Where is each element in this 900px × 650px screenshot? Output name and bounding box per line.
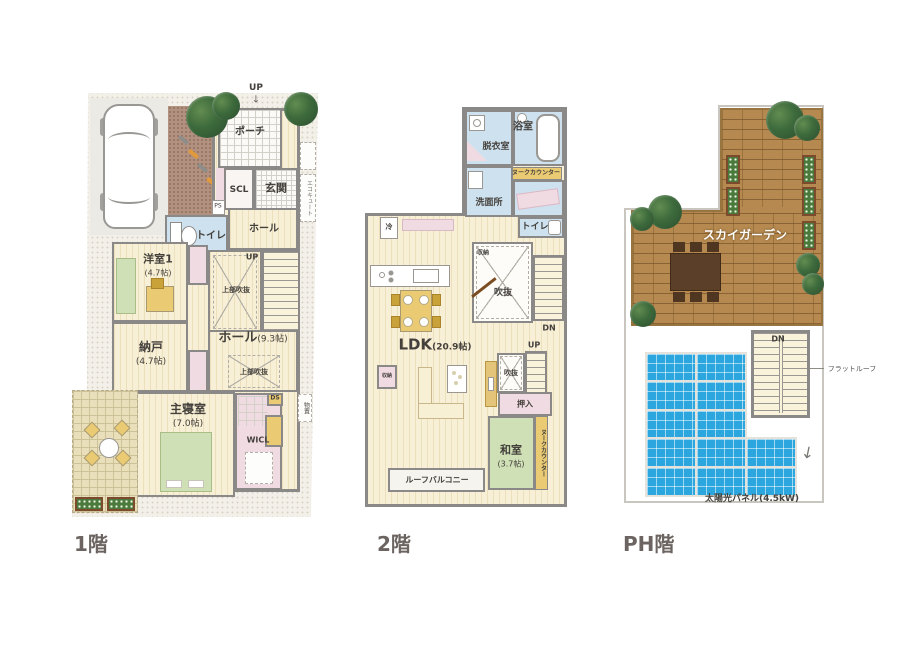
void-upper1-label: 上部吹抜 bbox=[222, 286, 250, 294]
shuno-left-label: 収納 bbox=[382, 374, 392, 380]
hall-main-label: ホール(9.3帖) bbox=[218, 332, 287, 347]
yoshitsu1-rug bbox=[116, 258, 136, 314]
tree bbox=[648, 195, 682, 229]
car bbox=[103, 104, 155, 229]
place-setting bbox=[419, 295, 429, 305]
toilet-label-1f: トイレ bbox=[196, 230, 226, 242]
garden-bench bbox=[690, 292, 702, 302]
nook-counter-side-label: ヌークカウンター bbox=[539, 429, 546, 477]
shushinshitsu-label: 主寝室 bbox=[170, 403, 206, 417]
void-upper2-label: 上部吹抜 bbox=[240, 368, 268, 376]
bed-pillow bbox=[188, 480, 204, 488]
up-stairs-label: UP bbox=[246, 252, 258, 261]
garden-planter bbox=[802, 155, 816, 184]
oshiire-label: 押入 bbox=[517, 399, 533, 408]
ldk-label: LDK(20.9帖) bbox=[398, 336, 471, 353]
closet-nando bbox=[188, 350, 208, 392]
kitchen-back-counter bbox=[402, 219, 454, 231]
porch-label: ポーチ bbox=[235, 126, 265, 138]
bathtub bbox=[536, 114, 560, 162]
car-body bbox=[103, 104, 155, 229]
solar-panel bbox=[695, 437, 747, 468]
study-counter-chair bbox=[488, 377, 494, 391]
car-rear-window bbox=[108, 190, 150, 204]
tree bbox=[284, 92, 318, 126]
garden-bench bbox=[690, 242, 702, 252]
flower-planter bbox=[107, 497, 135, 511]
yoshitsu1-desk bbox=[146, 286, 174, 312]
hall-small-label: ホール bbox=[249, 223, 279, 235]
hall-main-name: ホール bbox=[218, 331, 257, 346]
vanity-sink bbox=[468, 171, 483, 189]
dining-chair bbox=[391, 294, 400, 306]
stairs-up-2f bbox=[525, 351, 547, 395]
coffee-table bbox=[447, 365, 467, 393]
ecocute-label: エコキュート bbox=[305, 180, 312, 216]
coffee-table-items bbox=[452, 371, 456, 375]
solar-panel bbox=[695, 352, 747, 383]
solar-panel bbox=[695, 466, 747, 497]
flat-roof-label: フラットルーフ bbox=[828, 365, 877, 373]
yoshitsu1-label: 洋室1 bbox=[143, 254, 173, 267]
wicl-shelves bbox=[238, 396, 268, 426]
floorPH-plan: ↓ スカイガーデン DN フラットルーフ 太陽光パネル(4.5kW) bbox=[618, 95, 878, 515]
washitsu-label: 和室 bbox=[500, 445, 522, 458]
garden-planter bbox=[802, 221, 816, 250]
flat-roof-connector bbox=[810, 368, 824, 369]
closet-yoshitsu bbox=[188, 245, 208, 285]
ldk-size: (20.9帖) bbox=[432, 342, 471, 352]
up-label-approach: UP bbox=[249, 83, 263, 93]
solar-panel bbox=[645, 466, 697, 497]
stove-burner bbox=[379, 272, 385, 278]
wicl-label: WICL bbox=[247, 435, 270, 444]
floorPH-caption: PH階 bbox=[623, 528, 674, 557]
yoshitsu1-chair bbox=[151, 278, 164, 289]
solar-panel bbox=[645, 409, 697, 440]
nando-size: (4.7帖) bbox=[136, 357, 166, 367]
floor2-plan: 脱衣室 浴室 ヌークカウンター 洗面所 トイレ 冷 収納 吹抜 DN LDK(2… bbox=[355, 95, 580, 515]
garden-planter bbox=[726, 155, 740, 184]
ecocute-box bbox=[300, 142, 316, 170]
solar-panel bbox=[745, 437, 797, 468]
senmenjo-label: 洗面所 bbox=[475, 198, 502, 208]
car-windshield bbox=[108, 132, 150, 148]
solar-panel bbox=[645, 380, 697, 411]
stairs-dn-2f bbox=[533, 255, 564, 321]
bed-pillow bbox=[166, 480, 182, 488]
stairs-1f bbox=[262, 250, 300, 334]
garden-bench bbox=[707, 292, 719, 302]
dining-chair bbox=[432, 294, 441, 306]
hall-main-size: (9.3帖) bbox=[257, 335, 287, 345]
place-setting bbox=[403, 317, 413, 327]
yoshitsu1-size: (4.7帖) bbox=[145, 268, 172, 277]
place-setting bbox=[419, 317, 429, 327]
outdoor-storage-label: 物置 bbox=[302, 402, 309, 414]
garden-bench bbox=[673, 292, 685, 302]
genkan-label: 玄関 bbox=[265, 183, 287, 196]
scl-label: SCL bbox=[230, 185, 249, 195]
fukinuke1-label: 吹抜 bbox=[494, 288, 512, 298]
dining-chair bbox=[432, 316, 441, 328]
garden-planter bbox=[726, 187, 740, 216]
place-setting bbox=[403, 295, 413, 305]
approach-arrow-icon: ↓ bbox=[252, 94, 260, 106]
dn-label-2f: DN bbox=[542, 323, 555, 332]
ds-label: DS bbox=[270, 396, 279, 403]
garden-bench bbox=[673, 242, 685, 252]
floor2-caption: 2階 bbox=[377, 528, 411, 557]
flower-planter bbox=[75, 497, 103, 511]
solar-panel bbox=[695, 409, 747, 440]
shuno-top-label: 収納 bbox=[477, 251, 489, 258]
solar-array bbox=[645, 352, 795, 494]
sofa-seat bbox=[418, 403, 464, 419]
tree bbox=[630, 301, 656, 327]
roof-balcony-label: ルーフバルコニー bbox=[405, 475, 468, 484]
garden-bench bbox=[707, 242, 719, 252]
tree bbox=[212, 92, 240, 120]
floor1-caption: 1階 bbox=[74, 528, 108, 557]
dn-label-ph: DN bbox=[771, 334, 784, 343]
wicl-door bbox=[245, 452, 273, 484]
solar-panel bbox=[645, 352, 697, 383]
yokushitsu-label: 浴室 bbox=[513, 121, 533, 133]
floorplan-page: { "colors": { "wall": "#8b8987", "wood_f… bbox=[0, 0, 900, 650]
fridge-label: 冷 bbox=[386, 223, 393, 231]
datsuishitsu-label: 脱衣室 bbox=[482, 142, 509, 152]
solar-panel bbox=[695, 380, 747, 411]
nando-label: 納戸 bbox=[139, 341, 163, 355]
nook-counter-top-label: ヌークカウンター bbox=[512, 171, 560, 178]
tree bbox=[794, 115, 820, 141]
garden-table bbox=[670, 253, 721, 291]
kitchen-sink bbox=[413, 269, 439, 283]
floor1-plan: UP ↓ ポーチ SCL 玄関 PS トイレ ホール UP 上部吹抜 洋室1 (… bbox=[60, 80, 330, 530]
ps-label: PS bbox=[214, 204, 221, 211]
ldk-name: LDK bbox=[398, 335, 432, 353]
toilet-fixture-2f bbox=[548, 220, 561, 235]
shushinshitsu-size: (7.0帖) bbox=[173, 419, 203, 429]
tree bbox=[802, 273, 824, 295]
tree bbox=[630, 207, 654, 231]
fukinuke2-label: 吹抜 bbox=[504, 369, 518, 377]
toilet-label-2f: トイレ bbox=[521, 222, 548, 232]
washing-machine-drum bbox=[473, 119, 481, 127]
garden-planter bbox=[802, 187, 816, 216]
solar-panel-label: 太陽光パネル(4.5kW) bbox=[705, 494, 799, 504]
solar-panel bbox=[645, 437, 697, 468]
dining-chair bbox=[391, 316, 400, 328]
washitsu-size: (3.7帖) bbox=[498, 459, 525, 468]
solar-panel bbox=[745, 466, 797, 497]
sky-garden-label: スカイガーデン bbox=[703, 229, 787, 243]
up-label-2f: UP bbox=[528, 340, 540, 349]
